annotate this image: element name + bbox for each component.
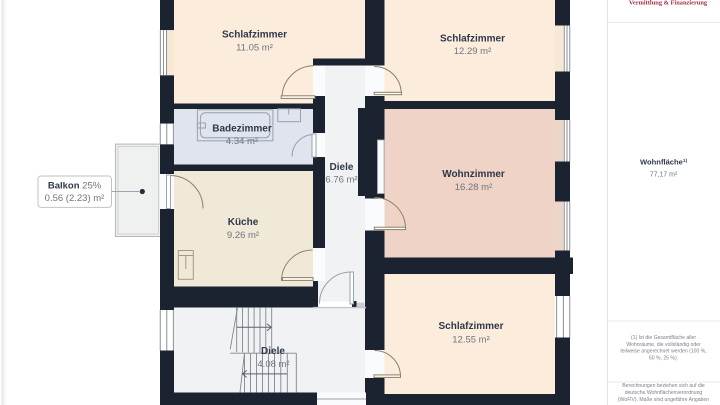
svg-text:11.05 m²: 11.05 m² [236,42,273,53]
svg-text:Badezimmer: Badezimmer [212,123,272,134]
svg-text:Schlafzimmer: Schlafzimmer [222,29,287,40]
svg-text:4.34 m²: 4.34 m² [226,136,258,147]
svg-text:Vermittlung & Finanzierung: Vermittlung & Finanzierung [629,0,708,7]
svg-text:Diele: Diele [330,162,354,173]
svg-text:12.29 m²: 12.29 m² [454,46,492,57]
svg-text:Küche: Küche [228,217,259,228]
svg-text:Wohnfläche1): Wohnfläche1) [640,158,687,167]
svg-text:(WoFlV). Maße sind ungefähre A: (WoFlV). Maße sind ungefähre Angaben [618,397,709,403]
svg-text:77,17 m²: 77,17 m² [650,172,678,179]
svg-text:9.26 m²: 9.26 m² [227,230,259,241]
svg-text:teilweise angerechnet werden (: teilweise angerechnet werden (100 %, [620,349,706,355]
svg-text:4.08 m²: 4.08 m² [257,359,289,370]
svg-text:Wohnräume, die vollständig ode: Wohnräume, die vollständig oder [626,342,701,348]
svg-text:(1) Ist die Gesamtfläche aller: (1) Ist die Gesamtfläche aller [631,335,696,341]
svg-text:12.55 m²: 12.55 m² [452,335,490,346]
svg-text:Balkon 25%: Balkon 25% [48,180,102,191]
svg-text:deutsche Wohnflächenverordnung: deutsche Wohnflächenverordnung [625,390,703,396]
svg-text:Berechnungen beziehen sich auf: Berechnungen beziehen sich auf die [622,383,705,389]
svg-text:6.76 m²: 6.76 m² [325,175,357,186]
svg-text:Schlafzimmer: Schlafzimmer [438,321,503,332]
svg-text:50 %, 25 %).: 50 %, 25 %). [649,355,678,361]
svg-text:16.28 m²: 16.28 m² [455,182,493,193]
svg-text:Schlafzimmer: Schlafzimmer [440,34,505,45]
svg-text:0.56 (2.23) m²: 0.56 (2.23) m² [45,193,105,204]
svg-text:Wohnzimmer: Wohnzimmer [442,169,505,180]
svg-text:Diele: Diele [261,346,285,357]
